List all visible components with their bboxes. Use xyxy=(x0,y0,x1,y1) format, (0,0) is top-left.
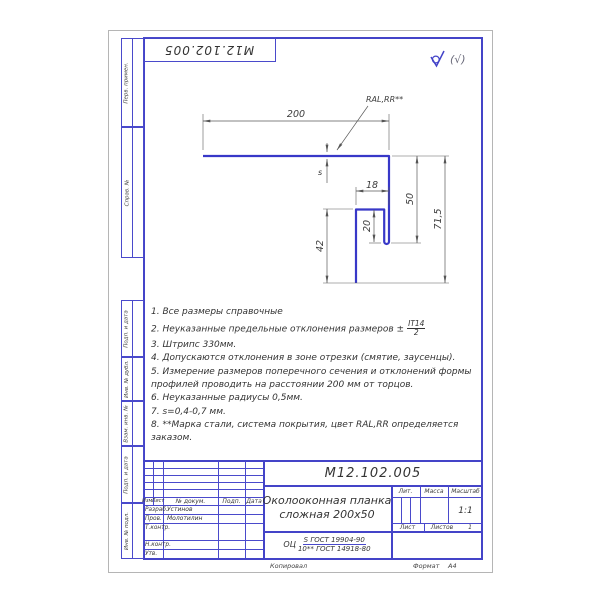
note-text-cont: профилей проводить на расстоянии 200 мм … xyxy=(151,379,479,392)
tb-row-name xyxy=(163,549,218,558)
note-number: 1. xyxy=(151,307,160,317)
note-8: 8. **Марка стали, система покрытия, цвет… xyxy=(151,419,479,444)
coating-label: RAL,RR** xyxy=(366,95,403,104)
tb-line xyxy=(143,468,263,469)
tb-line xyxy=(143,489,263,490)
tb-row-label: Разраб. xyxy=(143,505,163,514)
material-numerator: S ГОСТ 19904-90 xyxy=(303,536,366,545)
tb-col-podp: Подп. xyxy=(218,497,245,505)
material-prefix: ОЦ xyxy=(283,540,296,549)
note-text-cont: заказом. xyxy=(151,432,479,445)
notes-list: 1. Все размеры справочные 2. Неуказанные… xyxy=(151,306,479,446)
note-text: Измерение размеров поперечного сечения и… xyxy=(162,367,471,377)
dim-total-height-value: 71,5 xyxy=(433,208,444,229)
tb-scale-label: Масштаб xyxy=(448,485,483,497)
note-7: 7. s=0,4-0,7 мм. xyxy=(151,406,479,419)
note-text: Все размеры справочные xyxy=(162,307,282,317)
tb-part-name: Околооконная планка сложная 200х50 xyxy=(263,485,391,531)
note-4: 4. Допускаются отклонения в зоне отрезки… xyxy=(151,352,479,365)
dim-right-height-value: 50 xyxy=(405,193,416,205)
tb-scale-value: 1:1 xyxy=(448,497,483,524)
dim-left-height-value: 42 xyxy=(315,240,326,252)
material-fraction: S ГОСТ 19904-90 10** ГОСТ 14918-80 xyxy=(298,536,371,554)
tb-mass-label: Масса xyxy=(420,485,448,497)
tb-sheet-label: Лист xyxy=(391,523,424,532)
tb-line xyxy=(401,497,402,524)
note-number: 7. xyxy=(151,407,160,417)
note-1: 1. Все размеры справочные xyxy=(151,306,479,319)
part-name-line1: Околооконная планка xyxy=(263,494,392,508)
tb-sheets-label: Листов xyxy=(426,523,458,532)
tb-material: ОЦ S ГОСТ 19904-90 10** ГОСТ 14918-80 xyxy=(263,531,391,558)
tb-line xyxy=(143,482,263,483)
note-text: s=0,4-0,7 мм. xyxy=(162,407,225,417)
tb-row-label xyxy=(143,532,163,540)
coating-leader-line xyxy=(337,106,368,150)
note-2: 2. Неуказанные предельные отклонения раз… xyxy=(151,320,479,338)
tb-lit-label: Лит. xyxy=(391,485,420,497)
title-block: М12.102.005 Околооконная планка сложная … xyxy=(143,461,483,558)
tb-row-label: Н.контр. xyxy=(143,540,163,549)
note-text: Неуказанные радиусы 0,5мм. xyxy=(162,393,302,403)
note-text: **Марка стали, система покрытия, цвет RA… xyxy=(162,420,458,430)
dim-hook-width-value: 18 xyxy=(366,180,378,191)
tb-sheets-value: 1 xyxy=(461,523,479,532)
tolerance-fraction: IT142 xyxy=(407,320,425,338)
note-number: 5. xyxy=(151,367,160,377)
tb-row-name: Молотилин xyxy=(163,514,218,523)
note-6: 6. Неуказанные радиусы 0,5мм. xyxy=(151,392,479,405)
note-5: 5. Измерение размеров поперечного сечени… xyxy=(151,366,479,391)
format-value: А4 xyxy=(448,562,457,570)
part-name-line2: сложная 200х50 xyxy=(279,508,374,522)
note-number: 8. xyxy=(151,420,160,430)
tb-line xyxy=(143,475,263,476)
copied-label: Копировал xyxy=(270,562,307,570)
tb-row-name xyxy=(163,523,218,532)
tb-line xyxy=(410,497,411,524)
tb-row-label: Утв. xyxy=(143,549,163,558)
tb-row-name xyxy=(163,532,218,540)
tb-row-label: Т.контр. xyxy=(143,523,163,532)
dim-hook-height-value: 20 xyxy=(362,220,373,232)
note-text: Неуказанные предельные отклонения размер… xyxy=(162,324,404,334)
material-denominator: 10** ГОСТ 14918-80 xyxy=(298,545,371,553)
tb-row-name xyxy=(163,540,218,549)
profile-path xyxy=(203,156,389,283)
tb-row-label: Пров. xyxy=(143,514,163,523)
tb-col-data: Дата xyxy=(245,497,263,505)
note-number: 6. xyxy=(151,393,160,403)
note-number: 4. xyxy=(151,353,160,363)
note-number: 3. xyxy=(151,340,160,350)
tb-line xyxy=(424,523,425,532)
drawing-sheet: Перв. примен. Справ. № Подп. и дата Инв.… xyxy=(0,0,600,600)
dim-width-value: 200 xyxy=(287,109,305,120)
tb-col-doc: № докум. xyxy=(163,497,218,505)
tb-row-name: Устинов xyxy=(163,505,218,514)
tb-col-list: Лист xyxy=(153,497,163,505)
format-label: Формат xyxy=(413,562,439,570)
note-text: Штрипс 330мм. xyxy=(162,340,236,350)
dim-thickness-value: s xyxy=(318,168,322,177)
note-3: 3. Штрипс 330мм. xyxy=(151,339,479,352)
fraction-denominator: 2 xyxy=(414,329,419,338)
tb-doc-number: М12.102.005 xyxy=(263,461,483,485)
note-number: 2. xyxy=(151,324,160,334)
note-text: Допускаются отклонения в зоне отрезки (с… xyxy=(162,353,455,363)
